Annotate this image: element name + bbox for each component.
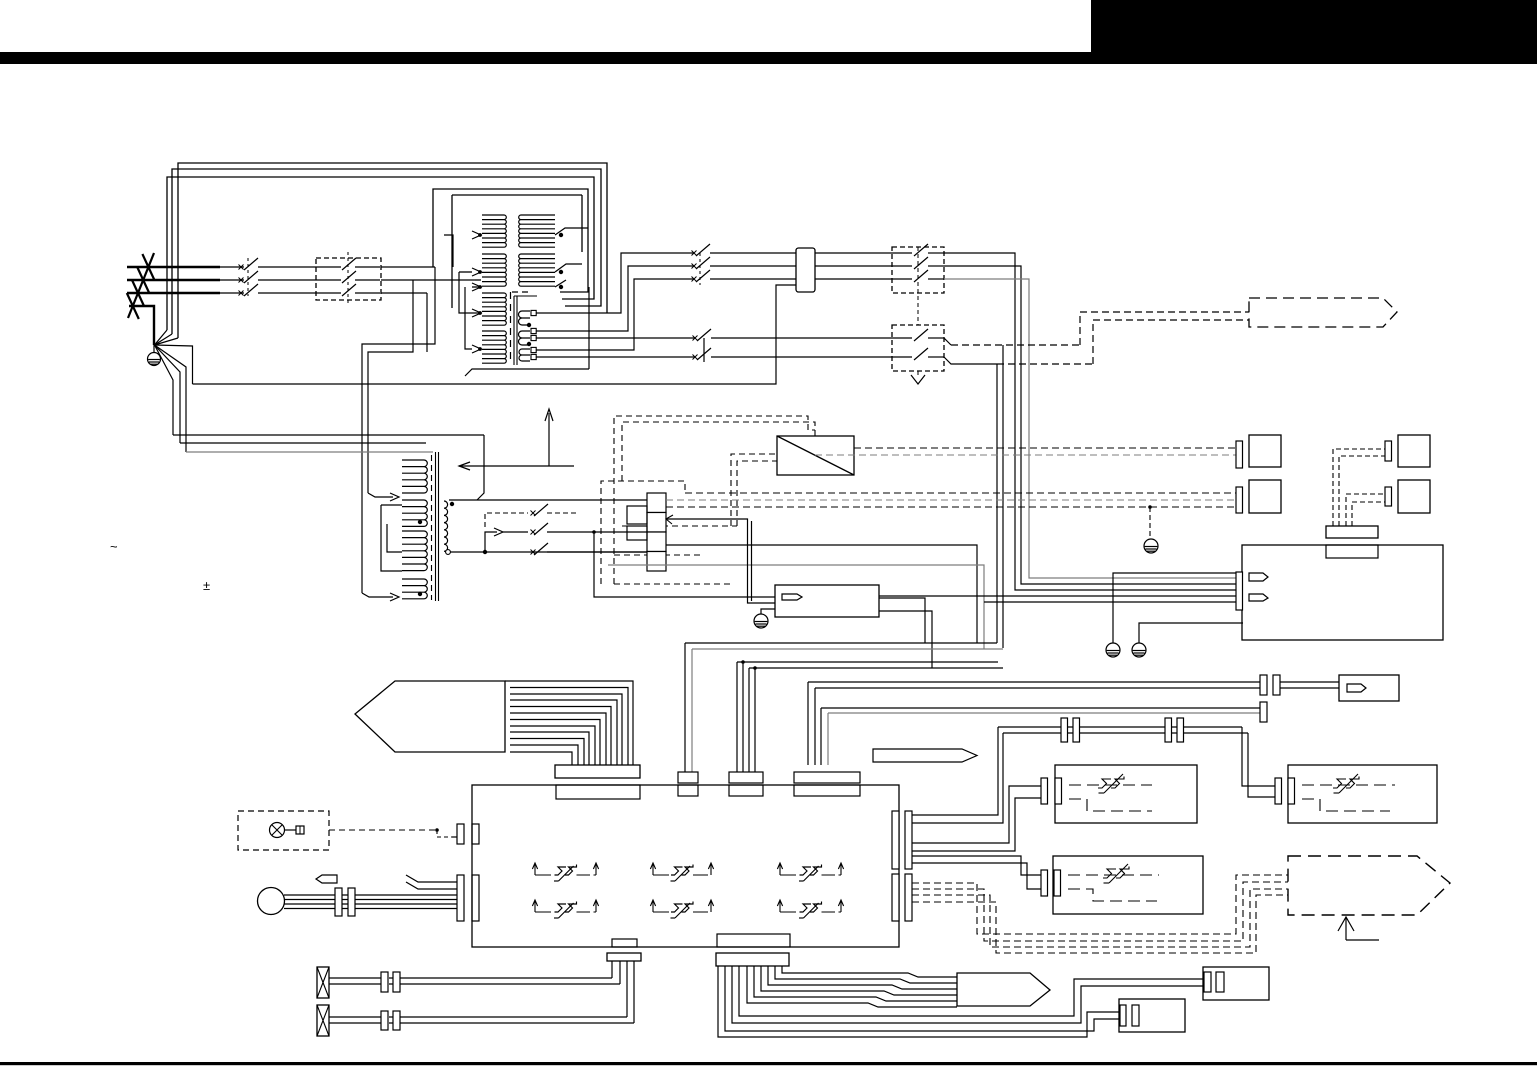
svg-text:~: ~ [110, 539, 118, 554]
svg-text:±: ± [203, 578, 210, 593]
